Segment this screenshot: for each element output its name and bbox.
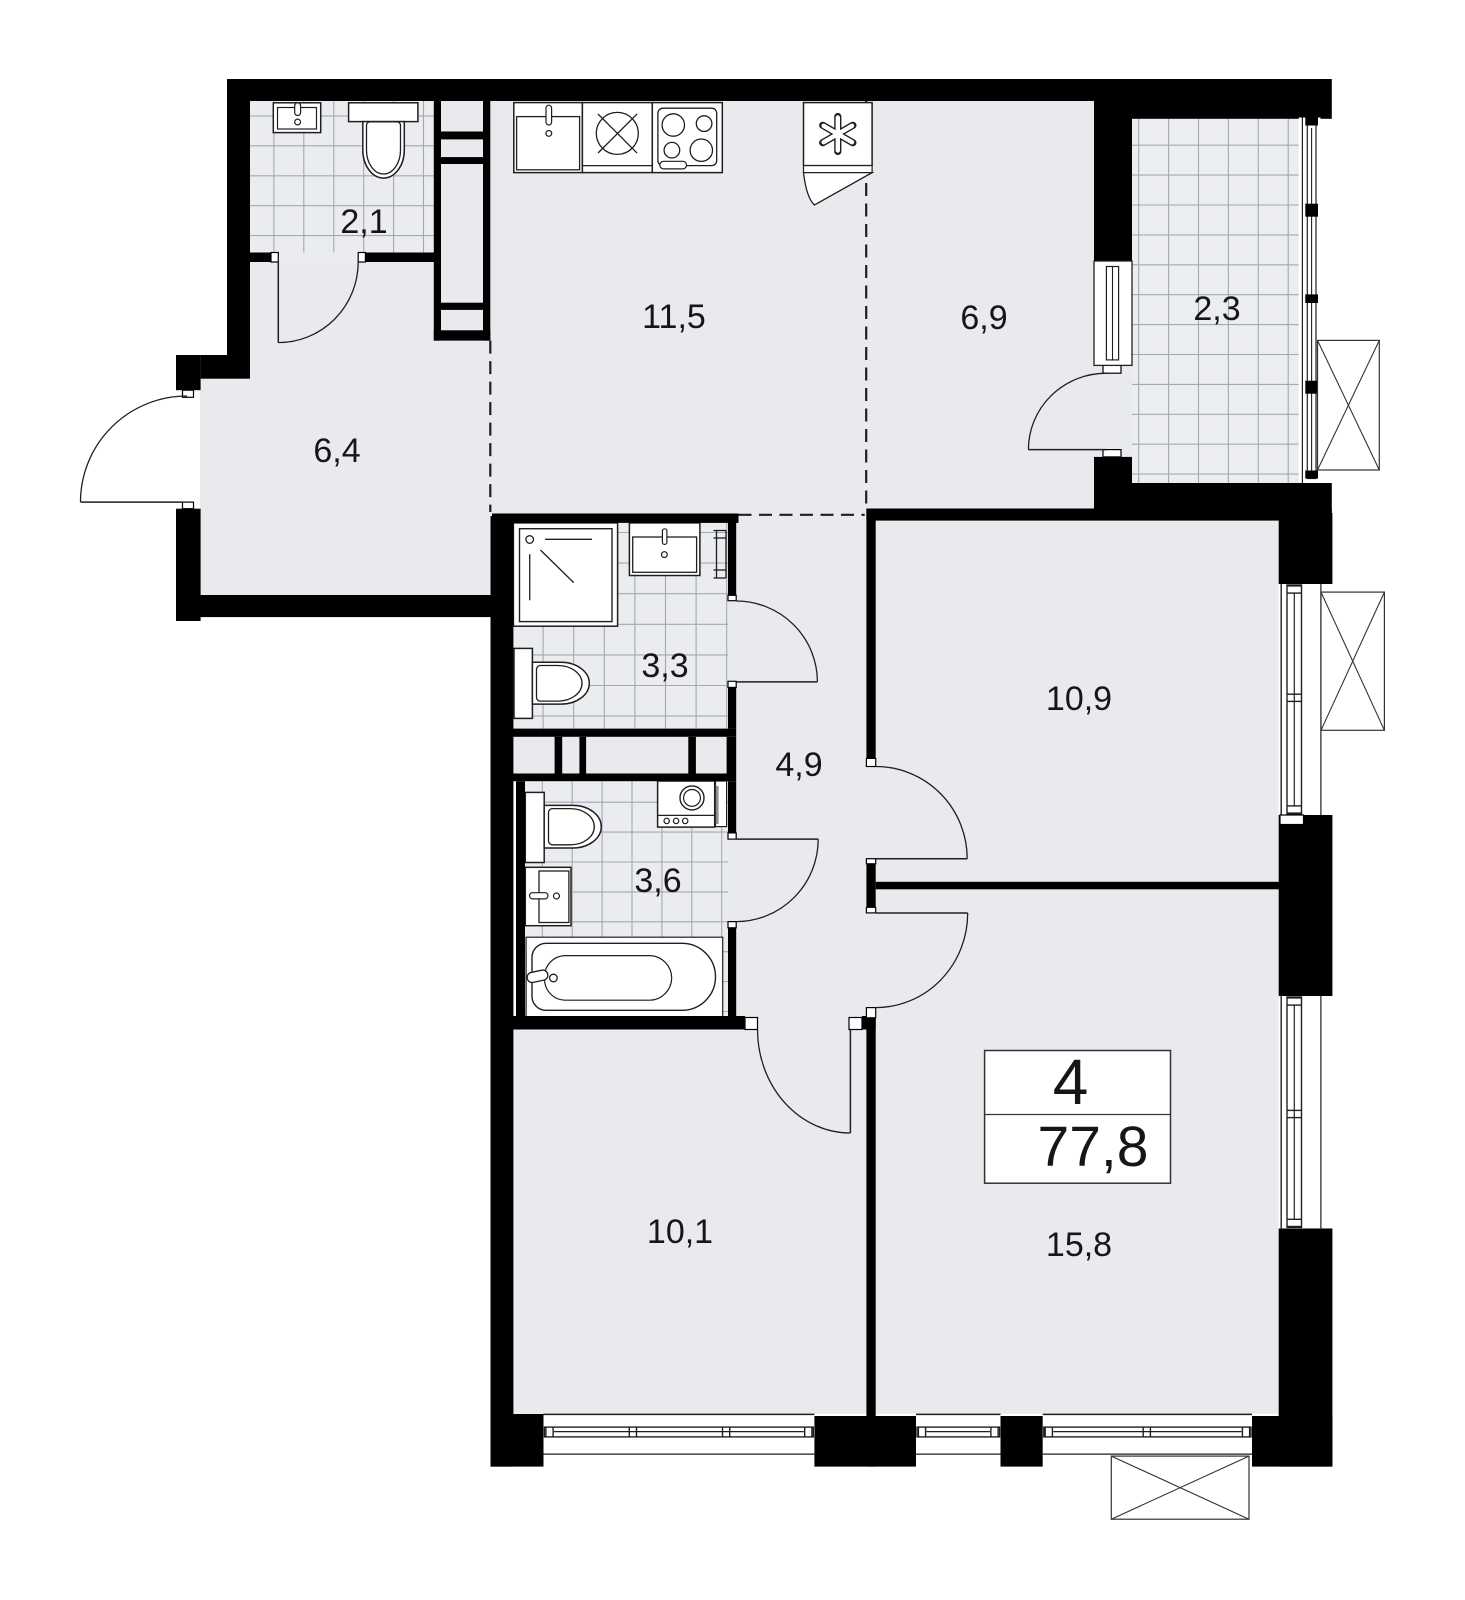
- svg-text:4: 4: [1053, 1046, 1089, 1118]
- svg-text:4,9: 4,9: [775, 746, 822, 784]
- svg-text:6,4: 6,4: [313, 432, 360, 470]
- svg-text:77,8: 77,8: [1038, 1115, 1149, 1179]
- svg-text:10,9: 10,9: [1046, 680, 1112, 718]
- svg-text:11,5: 11,5: [642, 298, 706, 336]
- svg-text:3,6: 3,6: [634, 862, 681, 900]
- svg-text:10,1: 10,1: [647, 1213, 713, 1251]
- svg-text:15,8: 15,8: [1046, 1226, 1112, 1264]
- svg-text:2,1: 2,1: [340, 203, 387, 241]
- svg-text:3,3: 3,3: [641, 647, 688, 685]
- svg-text:2,3: 2,3: [1193, 290, 1240, 328]
- svg-text:6,9: 6,9: [960, 299, 1007, 337]
